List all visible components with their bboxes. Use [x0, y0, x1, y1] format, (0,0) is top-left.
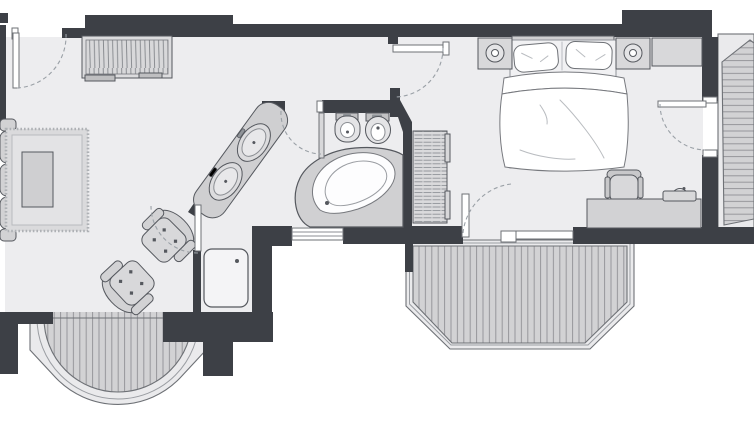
wall-divider-vertical [403, 122, 412, 227]
desk-chair [605, 170, 643, 202]
radiator-bracket [445, 191, 450, 219]
dresser [652, 38, 702, 66]
coffee-table [22, 152, 53, 207]
wall-left [0, 25, 6, 122]
balcony-polygonal [406, 240, 634, 349]
lamp-icon [624, 44, 642, 62]
nightstand-right [616, 38, 650, 69]
hall-door-jamb [443, 42, 449, 55]
deck-surface [722, 40, 754, 225]
drain-dot [325, 201, 329, 205]
lamp-icon [486, 44, 504, 62]
balcony-door-jamb-left [501, 231, 516, 242]
nightstand-left [478, 38, 512, 69]
deck-surface [413, 246, 627, 343]
toilet [366, 113, 391, 144]
desk [587, 199, 701, 228]
wall-stub-hall-door [388, 24, 398, 44]
wall-bedroom-bottom [573, 227, 754, 244]
radiator-bracket [445, 134, 450, 162]
wall-shower-left [193, 250, 201, 312]
balcony-side [718, 34, 754, 234]
floor-plan-drawing [0, 0, 754, 435]
wall-shower-right [252, 226, 292, 312]
wall-top-c [622, 10, 712, 37]
drain-dot [235, 259, 239, 263]
bathroom-window [292, 228, 343, 240]
wall-top-b [233, 24, 623, 37]
pillow-left [513, 42, 559, 73]
wall-top-a [85, 15, 233, 37]
shower-tray [204, 249, 248, 307]
toilet-wall-jamb [317, 101, 323, 112]
double-bed [500, 40, 628, 171]
wall-top-left-mini [0, 13, 8, 23]
pillow-right [566, 41, 613, 70]
wall-bathroom-bottom-leg [405, 244, 413, 272]
bidet [335, 113, 360, 142]
wall-bathroom-bottom [343, 226, 463, 244]
floor-plan-page [0, 0, 754, 435]
wall-right-upper [702, 37, 718, 101]
hanging-clothes-hatch [86, 40, 168, 74]
balcony-door-jamb-bottom [703, 150, 717, 157]
wardrobe-handle [85, 75, 115, 81]
wall-toilet [322, 100, 398, 113]
wall-right-lower [702, 155, 718, 230]
radiator [413, 131, 450, 223]
wardrobe [82, 36, 172, 81]
wardrobe-handle [139, 73, 162, 78]
shower [204, 249, 248, 307]
